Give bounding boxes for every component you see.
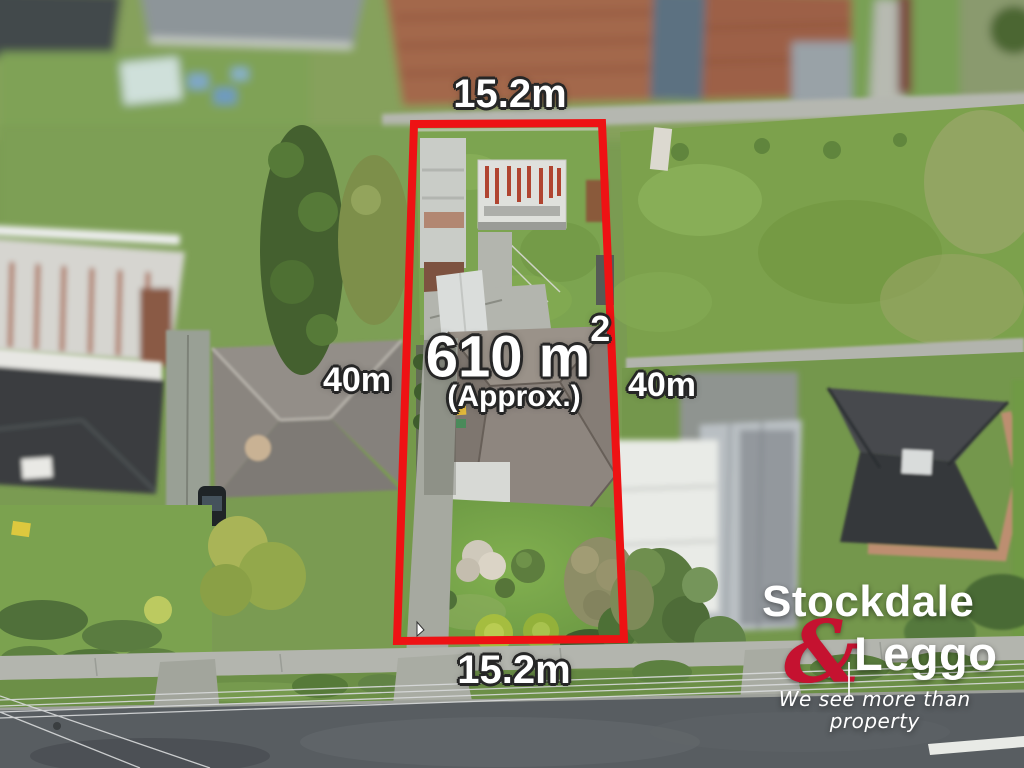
dimension-label-right: 40m — [628, 368, 696, 402]
logo-name-line2: Leggo — [854, 630, 997, 677]
area-approx-label: (Approx.) — [447, 382, 580, 412]
area-label: 610 m2 — [426, 326, 610, 386]
area-superscript: 2 — [590, 308, 610, 349]
logo-tagline: We see more than property — [756, 688, 993, 732]
dimension-label-left: 40m — [323, 363, 391, 397]
logo-ampersand: & — [784, 610, 862, 696]
agency-logo: Stockdale & Leggo We see more than prope… — [762, 580, 974, 718]
dimension-label-bottom: 15.2m — [457, 650, 570, 690]
vacant-lot — [608, 104, 1024, 376]
dimension-label-top: 15.2m — [453, 74, 566, 114]
aerial-property-photo: 15.2m 40m 40m 15.2m 610 m2 (Approx.) Sto… — [0, 0, 1024, 768]
